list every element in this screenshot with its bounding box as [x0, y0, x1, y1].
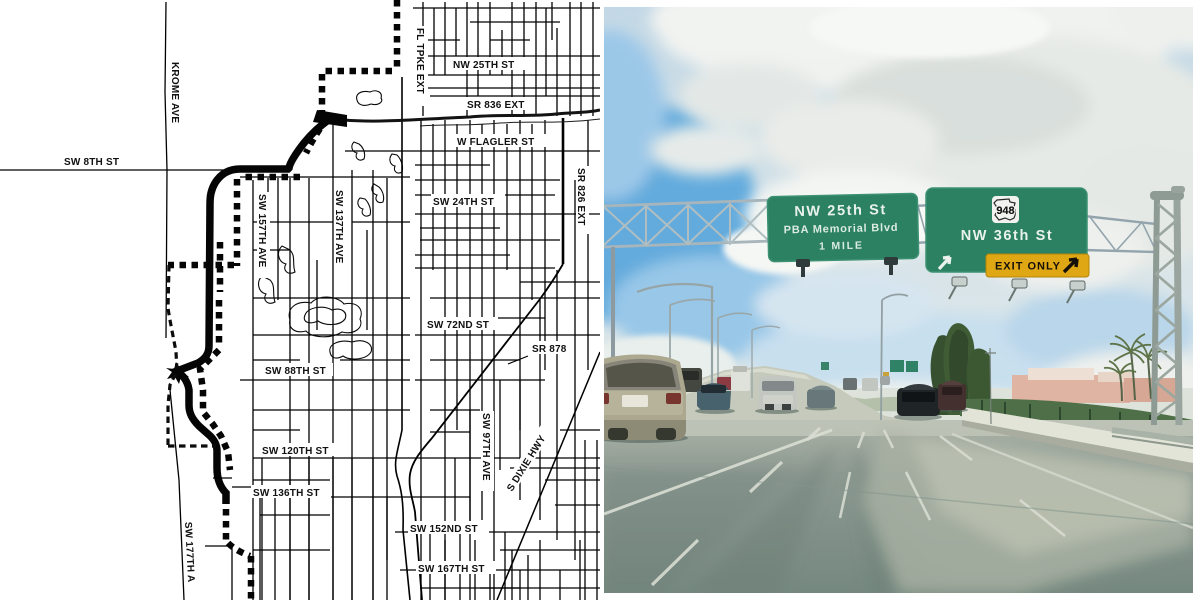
- svg-text:SW 152ND ST: SW 152ND ST: [410, 524, 478, 535]
- svg-text:NW 36th St: NW 36th St: [961, 228, 1054, 244]
- svg-text:948: 948: [996, 205, 1014, 217]
- svg-text:SW 137TH AVE: SW 137TH AVE: [333, 190, 344, 264]
- svg-text:SW 167TH ST: SW 167TH ST: [418, 564, 485, 575]
- svg-text:SW 8TH ST: SW 8TH ST: [64, 157, 119, 168]
- svg-text:SW 157TH AVE: SW 157TH AVE: [256, 194, 267, 268]
- svg-text:NW 25TH ST: NW 25TH ST: [453, 60, 514, 71]
- svg-text:EXIT ONLY: EXIT ONLY: [995, 261, 1061, 273]
- svg-text:SR 836 EXT: SR 836 EXT: [467, 100, 525, 111]
- svg-text:W FLAGLER ST: W FLAGLER ST: [457, 137, 534, 148]
- svg-text:1 MILE: 1 MILE: [819, 240, 864, 253]
- svg-text:SR 826 EXT: SR 826 EXT: [575, 168, 586, 226]
- svg-text:SW 88TH ST: SW 88TH ST: [265, 366, 326, 377]
- svg-text:SW 72ND ST: SW 72ND ST: [427, 320, 489, 331]
- svg-text:SW 136TH ST: SW 136TH ST: [253, 488, 320, 499]
- svg-text:SW 24TH ST: SW 24TH ST: [433, 197, 494, 208]
- svg-text:SR 878: SR 878: [532, 344, 567, 355]
- svg-text:KROME AVE: KROME AVE: [169, 62, 180, 123]
- svg-text:SW 97TH AVE: SW 97TH AVE: [480, 413, 491, 481]
- svg-text:NW 25th St: NW 25th St: [794, 202, 887, 220]
- svg-text:FL TPKE EXT: FL TPKE EXT: [414, 28, 425, 94]
- svg-text:SW 120TH ST: SW 120TH ST: [262, 446, 329, 457]
